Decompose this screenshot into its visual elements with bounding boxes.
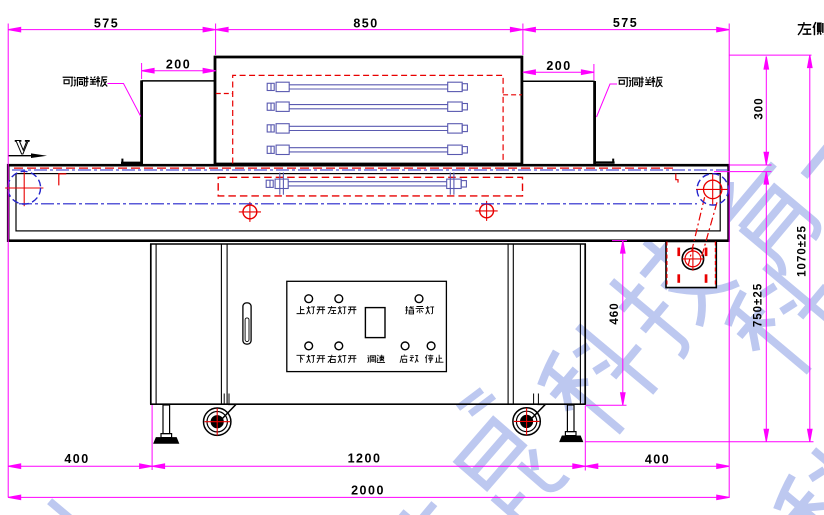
svg-text:200: 200 [166, 57, 191, 71]
svg-text:300: 300 [754, 97, 766, 119]
svg-text:400: 400 [64, 452, 89, 466]
svg-text:575: 575 [613, 16, 638, 30]
svg-text:750±25: 750±25 [753, 283, 765, 327]
svg-text:2000: 2000 [351, 484, 385, 498]
svg-text:575: 575 [94, 17, 119, 31]
svg-text:850: 850 [353, 17, 378, 31]
svg-text:1070±25: 1070±25 [797, 225, 809, 277]
svg-text:1200: 1200 [348, 452, 382, 466]
svg-text:460: 460 [609, 302, 621, 324]
svg-text:400: 400 [645, 453, 670, 467]
svg-text:200: 200 [546, 59, 571, 73]
